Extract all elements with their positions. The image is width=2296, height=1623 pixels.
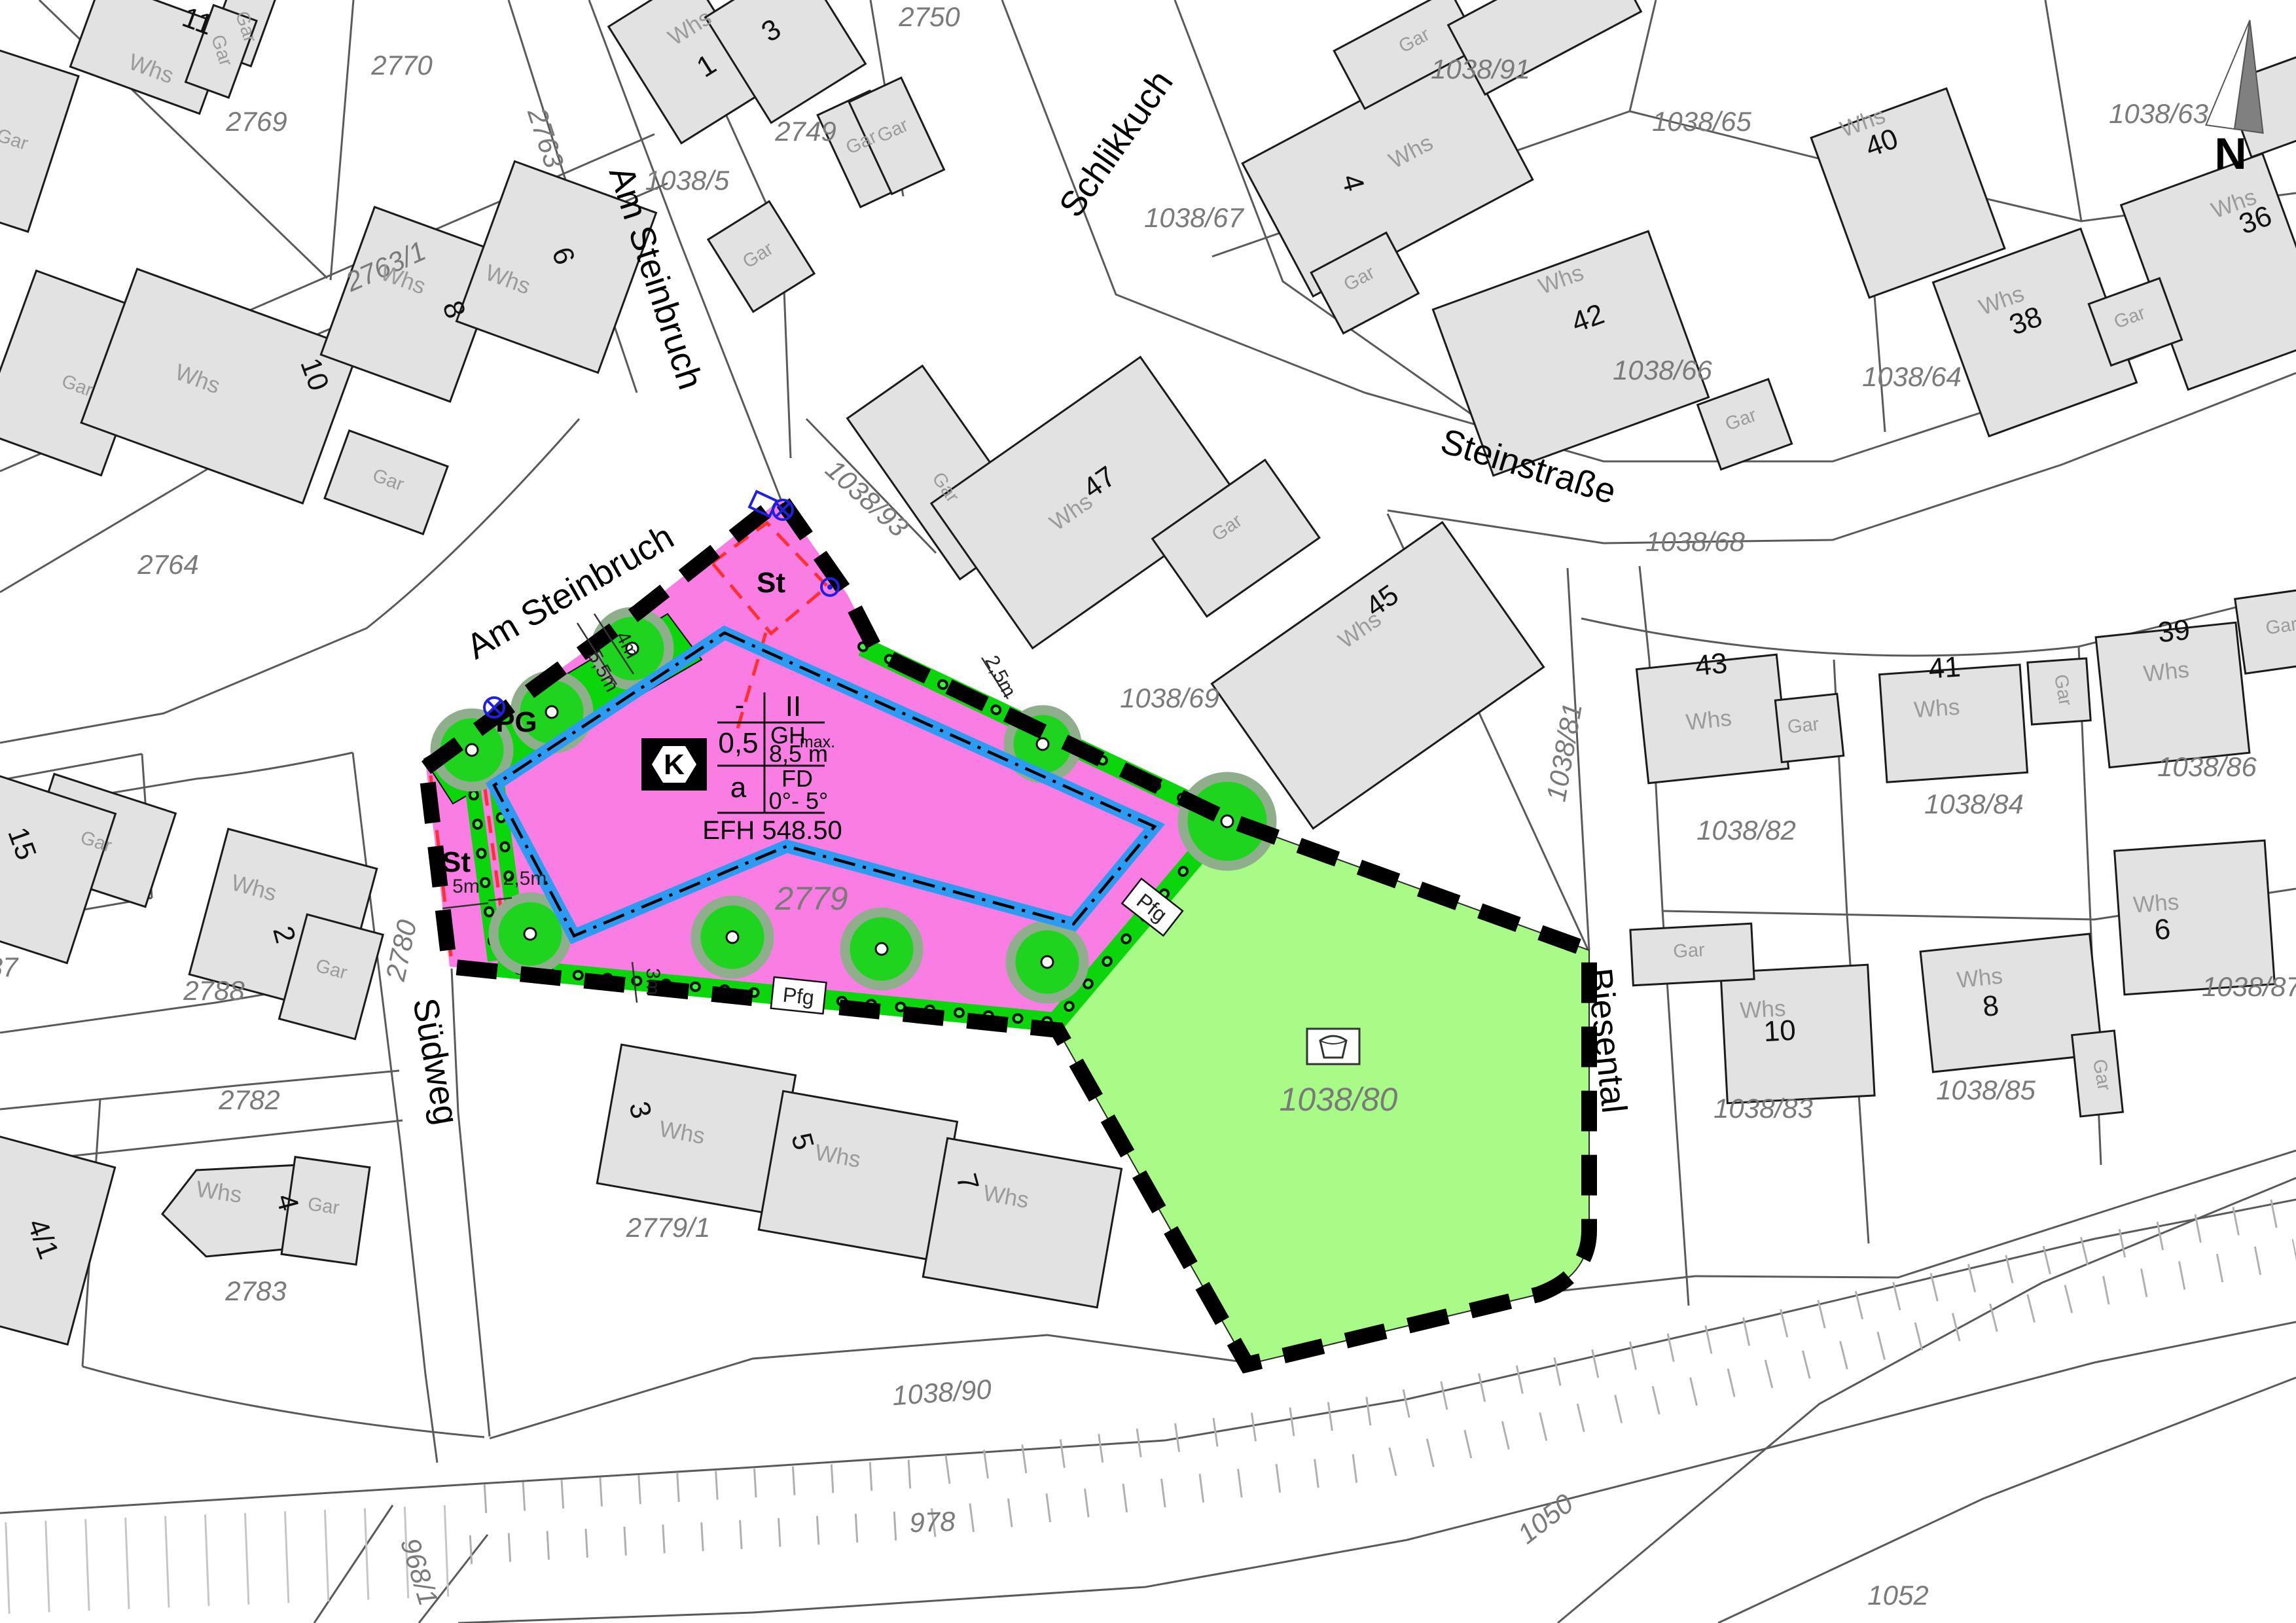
parcel-label-2779-1: 2779/1 (626, 1212, 710, 1243)
building-label-whs: Whs (1956, 963, 2004, 993)
parcel-line (0, 1071, 399, 1109)
parcel-line (331, 0, 353, 280)
table-dash: - (735, 689, 745, 721)
road-edge-1050 (1558, 1178, 2296, 1623)
building-label-gar: Gar (1786, 714, 1820, 738)
parcel-label-1038-85: 1038/85 (1936, 1075, 2036, 1105)
parcel-label-1038-80: 1038/80 (1280, 1081, 1398, 1118)
building-whs-36 (2121, 154, 2296, 390)
parcel-label-1038-67: 1038/67 (1144, 202, 1244, 233)
dim-5m: 5m (452, 876, 480, 897)
parcel-label-87: 87 (0, 952, 19, 982)
dim-2-5m: 2,5m (503, 868, 547, 889)
parcel-label-1038-69: 1038/69 (1120, 683, 1219, 713)
pfg-marker-south: Pfg (771, 977, 827, 1014)
building-label-whs: Whs (1913, 694, 1961, 723)
tree-icon (1183, 777, 1272, 866)
parcel-label-1038-90: 1038/90 (891, 1374, 993, 1412)
house-number-39: 39 (2157, 614, 2192, 649)
table-grz: 0,5 (718, 727, 758, 759)
road-edge-1050 (1718, 1378, 2296, 1623)
street-label-schlikkuch: Schlikkuch (1052, 63, 1181, 224)
building-whs-10e (1721, 965, 1874, 1103)
house-number-8e: 8 (1981, 990, 2000, 1023)
house-number-6e: 6 (2153, 913, 2172, 946)
parcel-label-1038-64: 1038/64 (1862, 361, 1962, 392)
k-marker: K (641, 738, 707, 791)
parcel-label-2750: 2750 (898, 1, 960, 32)
parcel-label-1038-84: 1038/84 (1924, 789, 2024, 819)
table-gh-value: 8,5 m (769, 740, 828, 767)
parcel-label-2763: 2763 (522, 103, 570, 171)
building-label-whs: Whs (1739, 995, 1786, 1024)
parcel-label-1052: 1052 (1867, 1580, 1928, 1611)
street-label-suedweg: Südweg (405, 995, 466, 1128)
building-label-gar: Gar (1673, 940, 1706, 963)
development-plan-map: Am Steinbruch Am Steinbruch Schlikkuch S… (0, 0, 2296, 1623)
parcel-label-2783: 2783 (224, 1275, 286, 1306)
pfg-label: Pfg (781, 983, 816, 1010)
parcel-label-1038-68: 1038/68 (1645, 526, 1745, 557)
house-number-41: 41 (1928, 651, 1962, 685)
building-label-gar: Gar (306, 1194, 341, 1219)
parcel-label-2769: 2769 (225, 106, 287, 137)
parcel-label-1050: 1050 (1512, 1488, 1579, 1550)
building-label-whs: Whs (1685, 705, 1733, 736)
parcel-label-2764: 2764 (137, 549, 198, 580)
parcel-label-978: 978 (909, 1506, 956, 1538)
road-edge (1563, 1276, 1695, 1291)
parcel-label-1038-66: 1038/66 (1613, 355, 1712, 385)
parcel-label-1038-83: 1038/83 (1713, 1093, 1813, 1124)
parcel-line (1695, 1150, 2296, 1277)
parcel-label-1038-63: 1038/63 (2109, 98, 2208, 129)
parcel-label-968-1: 968/1 (395, 1535, 444, 1609)
pg-label: PG (495, 706, 537, 738)
table-storeys: II (785, 690, 801, 722)
building-whs-5 (759, 1091, 957, 1260)
tree-icon (696, 901, 769, 974)
parcel-label-2782: 2782 (218, 1084, 279, 1115)
k-label: K (664, 749, 685, 781)
st-label-upper: St (757, 567, 785, 599)
dim-3m: 3m (642, 968, 664, 995)
parcel-label-1038-86: 1038/86 (2157, 751, 2257, 782)
parcel-label-2788: 2788 (183, 975, 245, 1006)
building-label-whs: Whs (2132, 889, 2180, 918)
building-label-whs: Whs (2142, 657, 2191, 687)
tree-icon (845, 912, 918, 986)
parcel-label-1038-65: 1038/65 (1652, 106, 1751, 137)
street-edge-suedweg-e (452, 969, 490, 1436)
parcel-label-1038-82: 1038/82 (1696, 815, 1796, 846)
tree-icon (1011, 925, 1084, 999)
parcel-label-2779: 2779 (774, 880, 848, 917)
house-number-43: 43 (1694, 647, 1729, 683)
parcel-label-2780: 2780 (380, 917, 423, 984)
parcel-label-1038-91: 1038/91 (1431, 54, 1530, 84)
north-label: N (2214, 129, 2246, 179)
building-whs-7 (923, 1138, 1121, 1308)
table-a: a (730, 772, 747, 804)
parcel-label-1038-5: 1038/5 (645, 165, 730, 196)
table-fd-value: 0°- 5° (769, 787, 829, 814)
parcel-label-2749: 2749 (774, 116, 836, 147)
dim-2-5m-east: 2,5m (980, 652, 1020, 700)
table-efh: EFH 548.50 (702, 816, 842, 845)
waste-container-icon (1307, 1029, 1359, 1064)
road-edge-1038-90-n (490, 1335, 1247, 1438)
parcel-line (82, 1366, 484, 1437)
st-label-lower: St (442, 846, 471, 878)
parcel-label-2770: 2770 (370, 50, 433, 80)
parcel-label-1038-87: 1038/87 (2202, 971, 2296, 1002)
road-edge-978-s (458, 1322, 2296, 1623)
building-label-gar: Gar (2265, 614, 2296, 639)
